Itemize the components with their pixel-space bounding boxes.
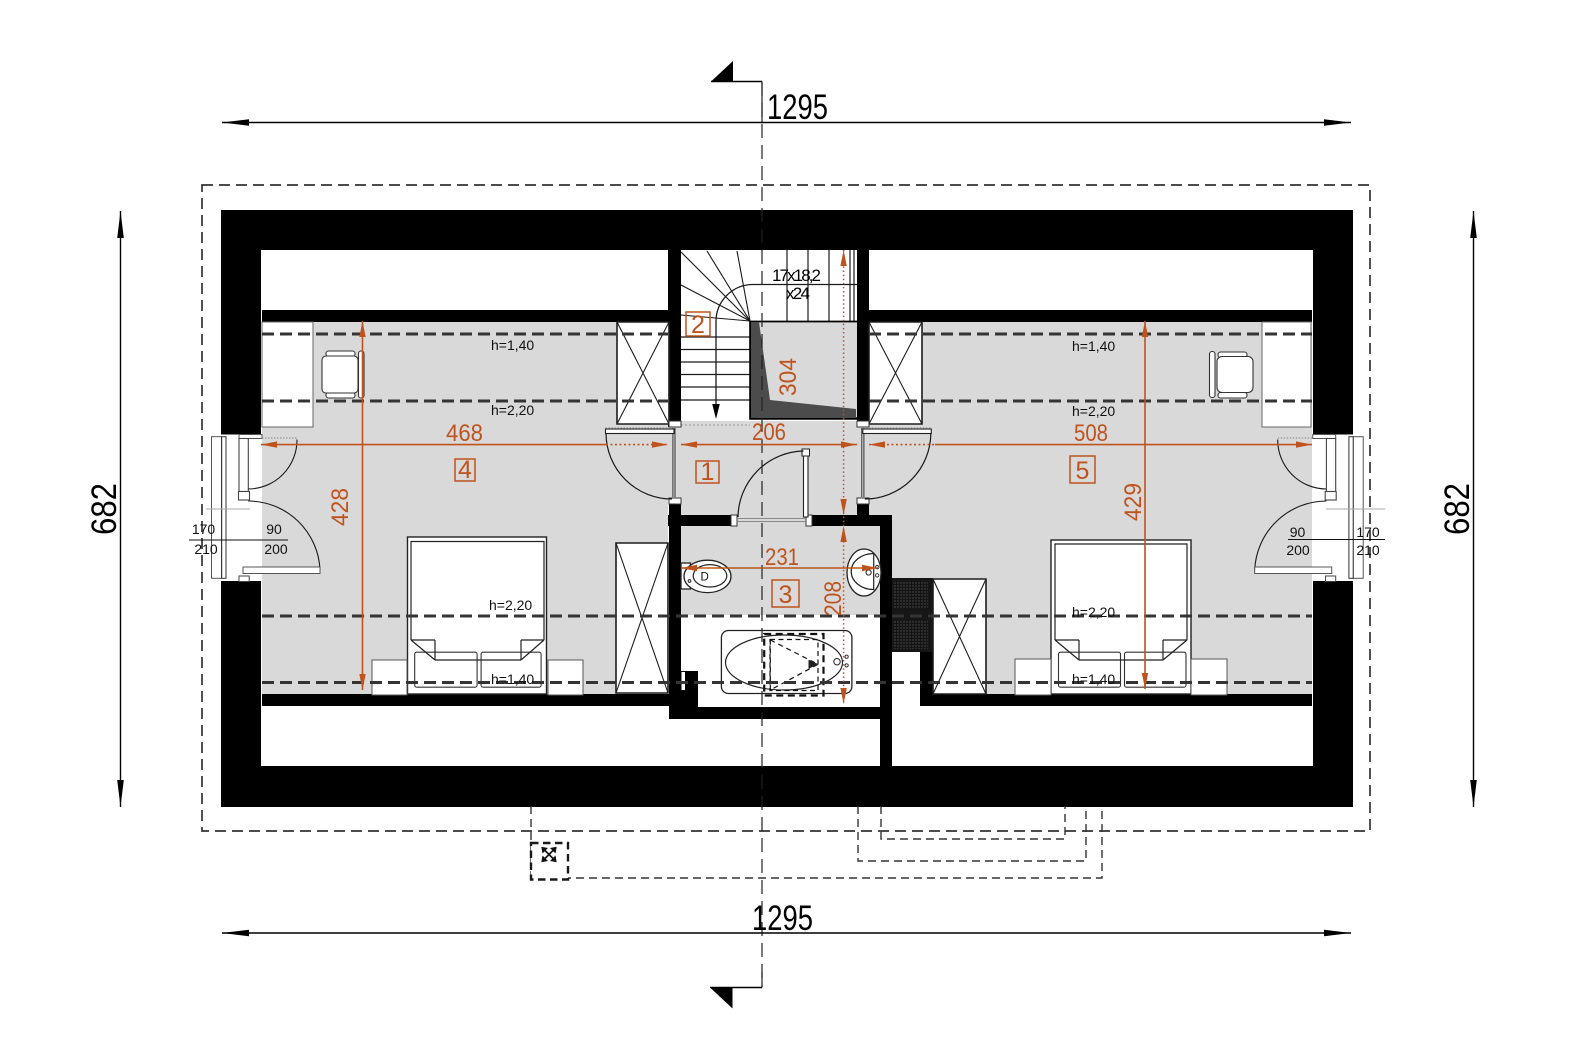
svg-text:508: 508 — [1074, 420, 1108, 447]
svg-text:200: 200 — [264, 541, 288, 557]
svg-text:1295: 1295 — [752, 899, 813, 938]
svg-text:304: 304 — [775, 358, 802, 396]
svg-text:2: 2 — [691, 311, 705, 339]
svg-text:h=1,40: h=1,40 — [1072, 671, 1115, 687]
svg-text:1: 1 — [701, 458, 715, 486]
svg-text:D: D — [701, 572, 709, 584]
svg-text:x24: x24 — [786, 284, 810, 303]
svg-text:1295: 1295 — [767, 88, 828, 127]
svg-text:4: 4 — [458, 456, 472, 484]
svg-text:429: 429 — [1120, 483, 1147, 521]
svg-text:170: 170 — [1356, 524, 1380, 540]
svg-text:682: 682 — [85, 483, 124, 535]
svg-text:h=1,40: h=1,40 — [1072, 338, 1115, 354]
svg-text:17x18,2: 17x18,2 — [772, 266, 821, 285]
svg-text:h=1,40: h=1,40 — [491, 671, 534, 687]
svg-text:468: 468 — [446, 420, 483, 447]
svg-text:h=2,20: h=2,20 — [1072, 604, 1115, 620]
svg-text:231: 231 — [765, 544, 799, 571]
svg-text:210: 210 — [194, 541, 218, 557]
svg-text:90: 90 — [1290, 524, 1306, 540]
svg-text:200: 200 — [1286, 542, 1310, 558]
svg-text:h=1,40: h=1,40 — [491, 337, 534, 353]
svg-text:208: 208 — [820, 581, 847, 616]
svg-text:h=2,20: h=2,20 — [491, 402, 534, 418]
svg-text:682: 682 — [1438, 483, 1477, 535]
svg-text:90: 90 — [266, 521, 282, 537]
svg-text:5: 5 — [1076, 457, 1090, 485]
svg-text:428: 428 — [327, 488, 354, 526]
svg-text:210: 210 — [1356, 542, 1380, 558]
svg-text:170: 170 — [192, 521, 216, 537]
svg-text:h=2,20: h=2,20 — [1072, 403, 1115, 419]
svg-text:h=2,20: h=2,20 — [489, 597, 532, 613]
svg-text:206: 206 — [752, 419, 786, 446]
svg-text:3: 3 — [779, 581, 793, 609]
